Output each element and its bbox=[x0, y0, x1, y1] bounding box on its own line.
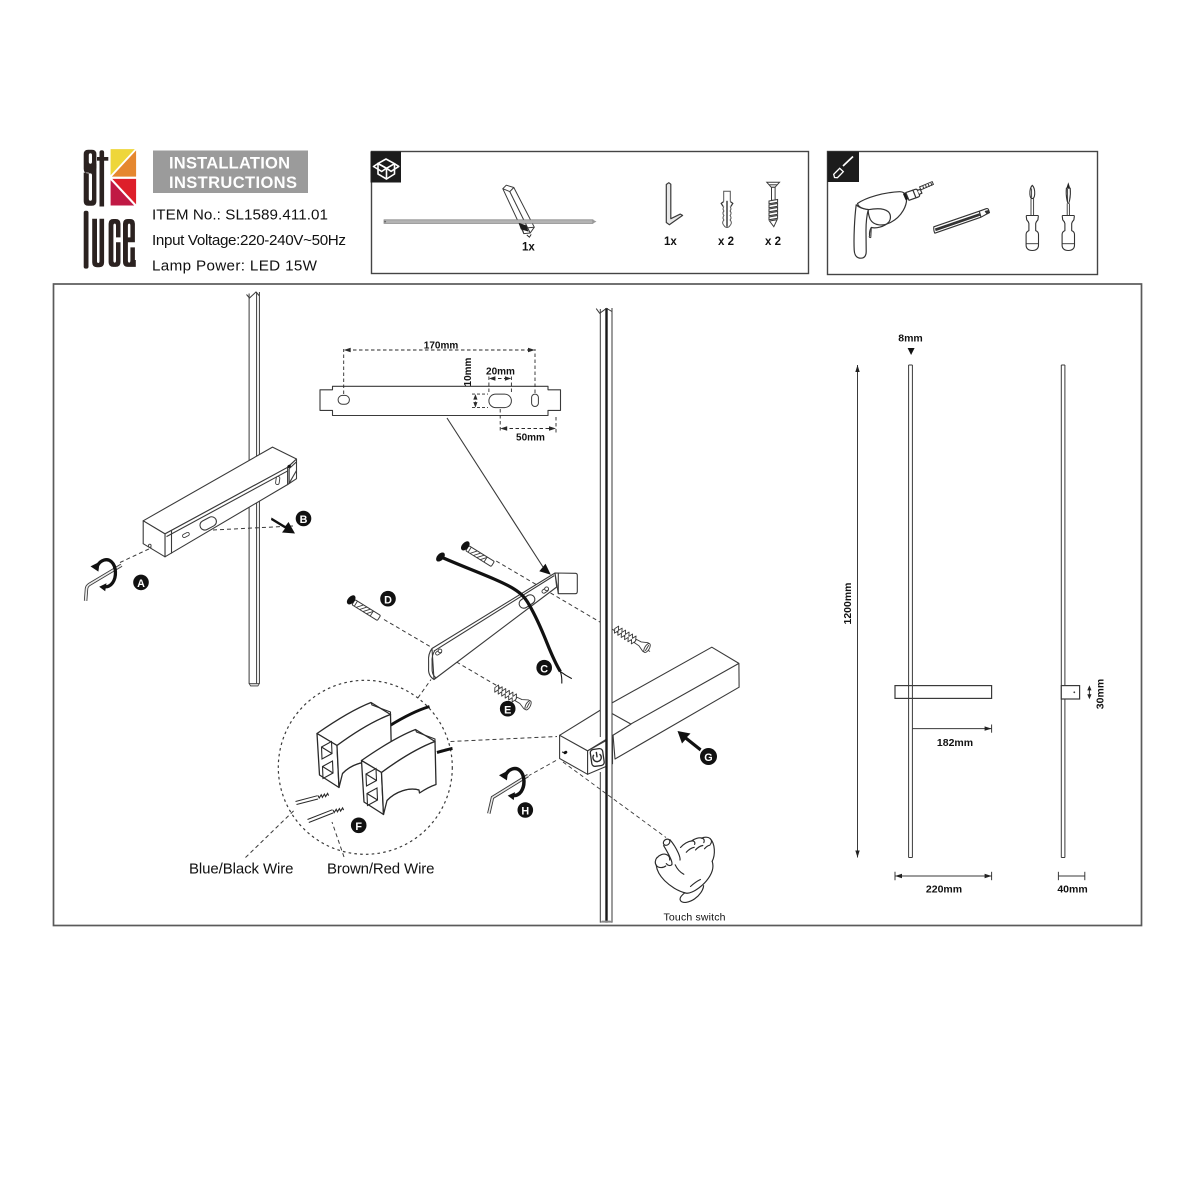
svg-text:INSTALLATION: INSTALLATION bbox=[169, 155, 290, 173]
svg-text:ITEM No.: SL1589.411.01: ITEM No.: SL1589.411.01 bbox=[152, 207, 328, 224]
svg-text:1200mm: 1200mm bbox=[842, 582, 854, 624]
svg-text:x 2: x 2 bbox=[765, 236, 781, 248]
svg-text:40mm: 40mm bbox=[1057, 884, 1087, 896]
svg-text:50mm: 50mm bbox=[516, 432, 545, 443]
svg-text:8mm: 8mm bbox=[898, 333, 923, 345]
svg-text:Lamp Power: LED 15W: Lamp Power: LED 15W bbox=[152, 258, 318, 275]
svg-text:Touch switch: Touch switch bbox=[664, 911, 726, 923]
svg-text:10mm: 10mm bbox=[463, 357, 474, 386]
svg-text:182mm: 182mm bbox=[937, 737, 973, 749]
svg-text:D: D bbox=[384, 594, 392, 606]
svg-text:G: G bbox=[704, 752, 712, 764]
svg-text:A: A bbox=[137, 578, 145, 590]
svg-text:220mm: 220mm bbox=[926, 884, 962, 896]
svg-text:Blue/Black Wire: Blue/Black Wire bbox=[189, 861, 294, 878]
svg-text:F: F bbox=[355, 821, 362, 833]
svg-text:Input Voltage:220-240V~50Hz: Input Voltage:220-240V~50Hz bbox=[152, 232, 346, 249]
svg-text:Brown/Red Wire: Brown/Red Wire bbox=[327, 861, 435, 878]
svg-text:170mm: 170mm bbox=[424, 340, 459, 351]
svg-text:B: B bbox=[300, 514, 308, 526]
svg-text:1x: 1x bbox=[522, 242, 535, 254]
svg-text:E: E bbox=[504, 704, 511, 716]
svg-text:20mm: 20mm bbox=[486, 367, 515, 378]
svg-text:30mm: 30mm bbox=[1095, 679, 1107, 709]
svg-text:1x: 1x bbox=[664, 236, 677, 248]
svg-text:C: C bbox=[540, 663, 548, 675]
svg-text:H: H bbox=[521, 806, 529, 818]
svg-text:INSTRUCTIONS: INSTRUCTIONS bbox=[169, 174, 297, 192]
svg-text:x 2: x 2 bbox=[718, 236, 734, 248]
